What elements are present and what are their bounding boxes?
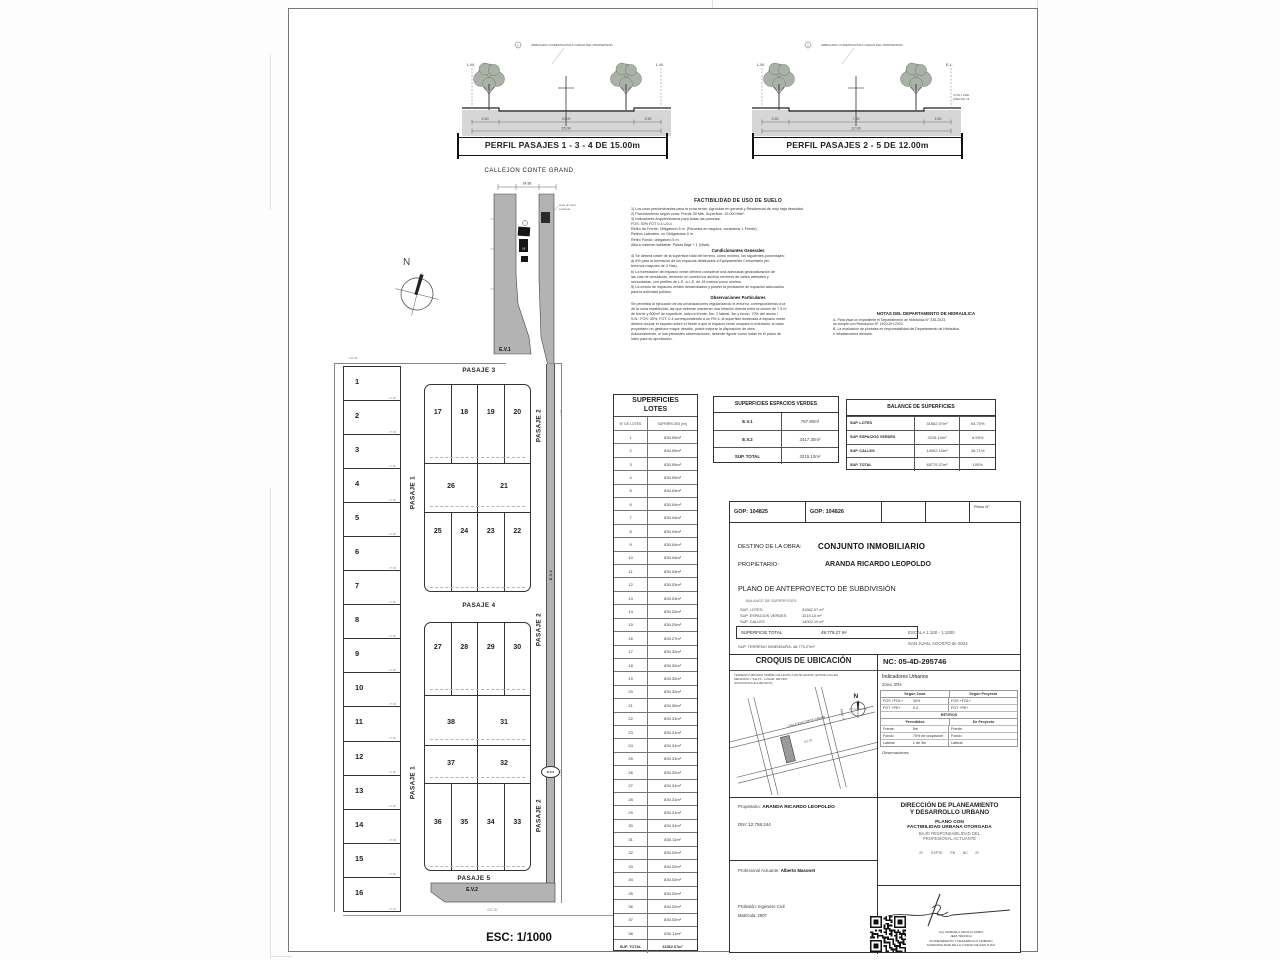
- table-row: 21830.30m²: [614, 698, 697, 711]
- lot-cell: 29: [477, 623, 504, 695]
- lot-cell: 927.86: [344, 639, 400, 673]
- pasaje5-label: PASAJE 5: [434, 875, 514, 882]
- table-row: 13830.03m²: [614, 591, 697, 604]
- zona-value: Zona: ZRe: [882, 682, 902, 687]
- block-row: 36353433: [425, 783, 530, 871]
- croquis-title: CROQUIS DE UBICACIÓN: [730, 656, 877, 665]
- factibilidad-notes: FACTIBILIDAD DE USO DE SUELO 1) Los usos…: [631, 198, 845, 342]
- profesion-value: Profesión: Ingeniero Civil: [738, 904, 785, 909]
- dimension-label: 1.94: [559, 406, 563, 420]
- table-row: 35830.02m²: [614, 886, 697, 899]
- matricula-value: Matrícula: 2907: [738, 913, 767, 918]
- lot-cell: 27: [425, 623, 451, 695]
- ev2-south-label: E.V.2: [457, 887, 487, 893]
- svg-text:15.00: 15.00: [561, 127, 571, 131]
- dimension-label: 27.86: [389, 634, 396, 638]
- page-tick: [712, 0, 713, 8]
- dimension-label: 27.86: [389, 770, 396, 774]
- dimension-label: 27.86: [389, 498, 396, 502]
- lot-number: 1: [355, 377, 359, 386]
- svg-text:ARBOLADO: FORESTACIÓN A CARGO: ARBOLADO: FORESTACIÓN A CARGO DEL PROPIE…: [821, 42, 903, 47]
- table-row: 19830.32m²: [614, 671, 697, 684]
- table-row: 1830.09m²: [614, 430, 697, 443]
- lot-number: 29: [478, 644, 504, 651]
- lot-cell: 34: [477, 784, 504, 871]
- lot-cell: 19: [477, 385, 504, 463]
- nc-number: NC: 05-4D-295746: [883, 657, 946, 666]
- table-row: SUP. TOTAL48779.27m²100%: [847, 457, 995, 471]
- svg-text:2.50: 2.50: [645, 117, 652, 121]
- lot-number: 11: [355, 717, 363, 726]
- destino-label: DESTINO DE LA OBRA:: [738, 544, 801, 550]
- croquis-description: TERRENO UBICADO SOBRE CALLEJÓN CONTE GRA…: [734, 673, 874, 686]
- lot-number: 15: [355, 854, 363, 863]
- table-row: 38830.11m²: [614, 926, 697, 939]
- lot-cell: 38: [425, 696, 477, 745]
- svg-text:34.88: 34.88: [523, 182, 532, 186]
- propietario-label: PROPIETARIO:: [738, 562, 779, 568]
- lot-number: 28: [452, 644, 478, 651]
- signature: [882, 890, 1017, 928]
- lot-cell: 327.86: [344, 435, 400, 469]
- lot-number: 12: [355, 752, 363, 761]
- table-row: 16830.27m²: [614, 631, 697, 644]
- table-row: 2830.09m²: [614, 443, 697, 456]
- lot-cell: 26: [425, 464, 477, 512]
- lot-number: 18: [452, 409, 478, 416]
- block-row: 25242322: [425, 512, 530, 592]
- propietario2: Propietario: ARANDA RICARDO LEOPOLDO: [738, 804, 835, 810]
- lot-number: 24: [452, 528, 478, 535]
- lot-number: 19: [478, 409, 504, 416]
- gop-header-row: GOP: 104825 GOP: 104826 Plano N°: [730, 502, 1020, 522]
- lots-table-header: N° DE LOTES SUPERFICIES (m²): [614, 416, 697, 430]
- lot-cell: 35: [451, 784, 478, 871]
- table-row: E.V.22417.30m²: [714, 430, 838, 447]
- lot-number: 35: [452, 819, 478, 826]
- lot-cell: 1127.86: [344, 707, 400, 741]
- page-tick: [1037, 0, 1038, 8]
- balance-superficies-table: BALANCE DE SUPERFICIES SUP. LOTES31562.0…: [846, 399, 996, 470]
- lot-number: 33: [505, 819, 531, 826]
- svg-text:CALLEJON CONTE GRAND: CALLEJON CONTE GRAND: [787, 715, 826, 728]
- block-row: 2621: [425, 463, 530, 512]
- svg-text:1: 1: [807, 43, 809, 47]
- lot-cell: 727.86: [344, 571, 400, 605]
- table-row: 29830.31m²: [614, 805, 697, 818]
- dimension-label: 27.86: [389, 668, 396, 672]
- lot-cell: 227.86: [344, 401, 400, 435]
- factibilidad-title: FACTIBILIDAD DE USO DE SUELO: [631, 198, 845, 204]
- lot-number: 36: [425, 819, 451, 826]
- svg-text:2.50: 2.50: [772, 117, 779, 121]
- lot-number: 5: [355, 513, 359, 522]
- lot-number: 37: [425, 760, 477, 767]
- lot-number: 27: [425, 644, 451, 651]
- block-row: 3831: [425, 695, 530, 745]
- observaciones-label: Observaciones: [882, 750, 909, 755]
- dimension-label: 27.86: [389, 907, 396, 911]
- block-row: 17181920: [425, 385, 530, 463]
- lot-number: 9: [355, 649, 359, 658]
- table-row: 27830.31m²: [614, 779, 697, 792]
- lot-cell: 17: [425, 385, 451, 463]
- dimension-label: 27.86: [389, 838, 396, 842]
- lot-cell: 427.86: [344, 469, 400, 503]
- terreno-mensura: SUP. TERRENO S/MENSURA: 48.779,27m²: [738, 644, 815, 649]
- table-row: SUP. ESPACIOS VERDES3215.10m²6.59%: [847, 430, 995, 444]
- table-row: 36830.02m²: [614, 899, 697, 912]
- firma-stamp: Arq. MARCELA CECILIA SORIA JEFA TÉCNICA …: [907, 930, 1015, 947]
- pasaje1-label: PASAJE 1: [409, 475, 416, 511]
- table-row: 8830.04m²: [614, 524, 697, 537]
- table-row: 7830.04m²: [614, 510, 697, 523]
- lower-lot-block: 272829303831373236353433: [424, 622, 531, 871]
- lots-table-title: SUPERFICIESLOTES: [614, 395, 697, 416]
- page-fold-line: [270, 488, 271, 958]
- corridor-lot-number: 18: [522, 247, 526, 251]
- lot-number: 26: [425, 483, 477, 490]
- lot-number: 3: [355, 445, 359, 454]
- dimension-label: 27.86: [389, 736, 396, 740]
- lot-number: 4: [355, 479, 359, 488]
- indicadores-title: Indicadores Urbanos: [882, 674, 928, 680]
- lot-number: 13: [355, 786, 363, 795]
- lot-cell: 28: [451, 623, 478, 695]
- propietario-value: ARANDA RICARDO LEOPOLDO: [825, 561, 931, 568]
- pasaje2-label: PASAJE 2: [535, 612, 542, 648]
- lot-number: 30: [505, 644, 531, 651]
- location-sketch: CALLEJON CONTE GRAND PROL. 5 452.30 N: [730, 687, 877, 795]
- lot-number: 16: [355, 888, 363, 897]
- lot-cell: 23: [477, 513, 504, 592]
- pasaje2-label: PASAJE 2: [535, 798, 542, 834]
- hidraulica-notes: NOTAS DEL DEPARTAMENTO DE HIDRAULICA A- …: [833, 311, 1019, 337]
- svg-text:12.00: 12.00: [851, 127, 861, 131]
- svg-text:LÍNEA DE CIERRE: LÍNEA DE CIERRE: [953, 97, 969, 101]
- lot-cell: 127.86: [344, 367, 400, 401]
- street-profile-right: L.M.E.L.2.507.002.5012.001ARBOLADO: FORE…: [744, 34, 969, 146]
- lot-number: 21: [478, 483, 530, 490]
- table-row: 24830.31m²: [614, 738, 697, 751]
- svg-text:LOTE 1 FRENTISTA: LOTE 1 FRENTISTA: [953, 93, 969, 97]
- dimension-label: 27.86: [389, 872, 396, 876]
- lot-cell: 30: [504, 623, 531, 695]
- entrance-corridor: 34.88 18 línea de cierre existente E.V.1: [484, 179, 576, 379]
- table-row: 17830.32m²: [614, 645, 697, 658]
- hidraulica-title: NOTAS DEL DEPARTAMENTO DE HIDRAULICA: [833, 311, 1019, 316]
- lot-number: 10: [355, 683, 363, 692]
- note-line: e infraestructura aledaña.: [833, 332, 1019, 337]
- lot-number: 31: [478, 719, 530, 726]
- croquis-north-label: N: [854, 693, 859, 700]
- ev2-label: E.V.2: [549, 567, 553, 583]
- svg-text:E.L.: E.L.: [946, 62, 953, 67]
- lot-number: 6: [355, 547, 359, 556]
- table-row: SUP. LOTES31562.07m²64.70%: [847, 416, 995, 430]
- lot-number: 20: [505, 409, 531, 416]
- table-row: 12830.03m²: [614, 577, 697, 590]
- svg-text:10.00: 10.00: [562, 117, 571, 121]
- lot-cell: 827.86: [344, 605, 400, 639]
- page-fold-line: [270, 55, 271, 210]
- pasaje3-label: PASAJE 3: [439, 367, 519, 374]
- superficies-lotes-table: SUPERFICIESLOTES N° DE LOTES SUPERFICIES…: [613, 394, 698, 951]
- lot-cell: 627.86: [344, 537, 400, 571]
- dimension-label: 27.86: [389, 396, 396, 400]
- lot-number: 17: [425, 409, 451, 416]
- north-compass-icon: N: [389, 249, 444, 324]
- block-row: 3732: [425, 745, 530, 783]
- table-row: 20830.32m²: [614, 685, 697, 698]
- svg-text:1: 1: [517, 43, 519, 47]
- table-row: 23830.31m²: [614, 725, 697, 738]
- table-row: SUP. CALLES14002.10m²28.71%: [847, 444, 995, 458]
- dni-value: DNI: 12.758.244: [738, 822, 771, 827]
- table-row: 10830.04m²: [614, 551, 697, 564]
- lot-cell: 21: [477, 464, 530, 512]
- ref-line: N° EXPTE FB NC N°: [877, 851, 1022, 855]
- callejon-label: CALLEJON CONTE GRAND: [449, 168, 609, 174]
- lot-cell: 36: [425, 784, 451, 871]
- table-row: E.V.1797.80m²: [714, 413, 838, 430]
- table-row: 25830.31m²: [614, 752, 697, 765]
- lot-cell: 1427.86: [344, 810, 400, 844]
- block-row: 27282930: [425, 623, 530, 695]
- table-row: 4830.09m²: [614, 470, 697, 483]
- gop-number-1: GOP: 104825: [730, 502, 806, 522]
- dimension-label: 27.86: [389, 600, 396, 604]
- lot-number: 38: [425, 719, 477, 726]
- escala-value: ESCALA 1:100 - 1:1000: [908, 630, 955, 635]
- direccion-block: DIRECCIÓN DE PLANEAMIENTO Y DESARROLLO U…: [877, 802, 1022, 855]
- lot-cell: 25: [425, 513, 451, 592]
- svg-text:2.50: 2.50: [482, 117, 489, 121]
- table-row: 33830.02m²: [614, 859, 697, 872]
- lot-number: 23: [478, 528, 504, 535]
- lot-cell: 31: [477, 696, 530, 745]
- balance-mini-title: BALANCE DE SUPERFICIES: [746, 599, 796, 603]
- table-row: 22830.31m²: [614, 712, 697, 725]
- scale-label: ESC: 1/1000: [429, 932, 609, 944]
- lot-cell: 1527.86: [344, 844, 400, 878]
- plano-tipo: PLANO DE ANTEPROYECTO DE SUBDIVISIÓN: [738, 584, 896, 593]
- north-label: N: [403, 257, 410, 268]
- screenshot-root: { "sheet": {"esc_label": "ESC: 1/1000"},…: [0, 0, 1280, 960]
- profesional-actuante: Profesional Actuante: Alberto Masonet: [738, 868, 815, 873]
- dimension-label: 27.86: [389, 804, 396, 808]
- table-row: 15830.20m²: [614, 618, 697, 631]
- dimension-label: 432.30: [487, 908, 497, 912]
- table-row: 26830.32m²: [614, 765, 697, 778]
- plano-n-label: Plano N°: [970, 502, 1020, 522]
- street-profile-left: L.M.L.M.2.5010.002.5015.001ARBOLADO: FOR…: [454, 34, 679, 146]
- dimension-label: 27.86: [389, 566, 396, 570]
- svg-text:2.50: 2.50: [935, 117, 942, 121]
- green-strip-east: [546, 364, 555, 887]
- lot-cell: 1327.86: [344, 776, 400, 810]
- page-fold-line: [270, 956, 292, 957]
- lot-cell: 18: [451, 385, 478, 463]
- table-row: 11830.03m²: [614, 564, 697, 577]
- table-row: 37830.02m²: [614, 913, 697, 926]
- profile-title-left: PERFIL PASAJES 1 - 3 - 4 DE 15.00m: [459, 137, 666, 156]
- lot-cell: 22: [504, 513, 531, 592]
- lot-cell: 20: [504, 385, 531, 463]
- fecha-value: SAN JUAN, AGOSTO de 2024: [908, 641, 968, 646]
- table-row: 31830.11m²: [614, 832, 697, 845]
- svg-text:7.00: 7.00: [853, 117, 860, 121]
- lot-cell: 1027.86: [344, 673, 400, 707]
- espacios-verdes-table: SUPERFICIES ESPACIOS VERDES E.V.1797.80m…: [713, 396, 839, 463]
- table-row: 30830.31m²: [614, 819, 697, 832]
- plan-sheet: L.M.L.M.2.5010.002.5015.001ARBOLADO: FOR…: [288, 8, 1038, 952]
- note-line: loteo para su aprobación.: [631, 337, 845, 342]
- table-row: 6830.04m²: [614, 497, 697, 510]
- lot-number: 14: [355, 820, 363, 829]
- title-block: GOP: 104825 GOP: 104826 Plano N° DESTINO…: [729, 501, 1021, 953]
- destino-value: CONJUNTO INMOBILIARIO: [818, 542, 925, 551]
- lot-cell: 24: [451, 513, 478, 592]
- ev2-badge: E.V.2: [541, 766, 560, 778]
- lot-number: 25: [425, 528, 451, 535]
- profile-title-right: PERFIL PASAJES 2 - 5 DE 12.00m: [754, 137, 961, 156]
- dimension-label: 111.86: [349, 356, 358, 360]
- svg-text:452.30: 452.30: [803, 738, 813, 744]
- lot-number: 34: [478, 819, 504, 826]
- lot-cell: 1227.86: [344, 742, 400, 776]
- table-row: 32830.02m²: [614, 846, 697, 859]
- ev1-label: E.V.1: [499, 347, 511, 353]
- indicadores-table: Según ZonaSegún Proyecto FOS +FOL+30%FOS…: [880, 690, 1018, 747]
- pasaje2-label: PASAJE 2: [535, 408, 542, 444]
- table-row: 34830.02m²: [614, 872, 697, 885]
- svg-text:L.M.: L.M.: [757, 62, 765, 67]
- lot-cell: 527.86: [344, 503, 400, 537]
- table-row: 3830.09m²: [614, 457, 697, 470]
- lot-cell: 1627.86: [344, 878, 400, 912]
- left-lot-column: 127.86227.86327.86427.86527.86627.86727.…: [343, 366, 401, 912]
- table-row: SUP. TOTAL3215.10m²: [714, 447, 838, 464]
- lot-number: 2: [355, 411, 359, 420]
- lot-number: 7: [355, 581, 359, 590]
- dimension-label: 27.86: [389, 702, 396, 706]
- pasaje4-label: PASAJE 4: [439, 602, 519, 609]
- lot-cell: 33: [504, 784, 531, 871]
- svg-text:L.M.: L.M.: [656, 62, 664, 67]
- superficie-total-box: SUPERFICIE TOTAL 48.779,27 m²: [736, 626, 918, 639]
- dimension-label: 27.86: [389, 464, 396, 468]
- dimension-label: 27.86: [389, 430, 396, 434]
- table-row: 28830.31m²: [614, 792, 697, 805]
- svg-text:ARBOLADO: FORESTACIÓN A CARGO: ARBOLADO: FORESTACIÓN A CARGO DEL PROPIE…: [531, 42, 613, 47]
- pasaje1-label: PASAJE 1: [409, 765, 416, 801]
- table-row: 9830.04m²: [614, 537, 697, 550]
- gop-number-2: GOP: 104826: [806, 502, 882, 522]
- svg-text:existente: existente: [559, 207, 571, 211]
- table-row: 18830.32m²: [614, 658, 697, 671]
- lot-number: 22: [505, 528, 531, 535]
- lot-number: 8: [355, 615, 359, 624]
- table-row: 5830.04m²: [614, 484, 697, 497]
- table-total-row: SUP. TOTAL31562.07m²: [614, 939, 697, 952]
- svg-text:L.M.: L.M.: [467, 62, 475, 67]
- dimension-label: 27.86: [389, 532, 396, 536]
- upper-lot-block: 17181920262125242322: [424, 384, 531, 592]
- lot-number: 32: [478, 760, 530, 767]
- table-row: 14830.20m²: [614, 604, 697, 617]
